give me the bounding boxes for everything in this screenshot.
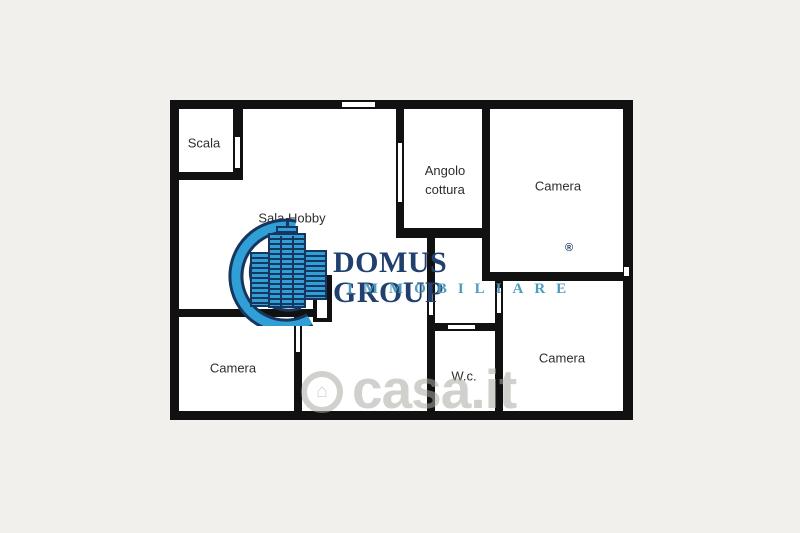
logo-building-divider-icon xyxy=(280,236,282,306)
wall-cottura-bottom xyxy=(396,228,490,238)
floorplan-image: ScalaSala HobbyAngolo cotturaCameraCamer… xyxy=(0,0,800,533)
room-label: Camera xyxy=(539,350,585,369)
casait-house-icon: ⌂ xyxy=(301,371,343,413)
door-scala xyxy=(234,137,241,168)
window-top xyxy=(342,101,375,108)
room-label: Camera xyxy=(210,360,256,379)
window-wc xyxy=(448,324,475,330)
logo-building-divider-icon xyxy=(292,236,294,306)
logo-title: DOMUS GROUP xyxy=(333,248,447,308)
registered-trademark-icon: ® xyxy=(565,242,573,254)
wall-outer-right xyxy=(623,100,633,420)
notch-right xyxy=(624,267,629,276)
room-label: Camera xyxy=(535,178,581,197)
window-cottura xyxy=(397,143,403,202)
wall-scala-bottom xyxy=(170,172,243,180)
logo-subtitle: IMMOBILIARE xyxy=(347,282,577,297)
wall-mid-right xyxy=(482,272,633,281)
wall-cottura-right xyxy=(482,100,490,281)
casait-text: casa.it xyxy=(352,362,516,417)
logo-building-center-icon xyxy=(268,233,306,308)
wall-outer-left xyxy=(170,100,179,420)
house-glyph: ⌂ xyxy=(316,381,327,403)
door-camera-bl xyxy=(295,323,301,352)
room-label: Angolo cottura xyxy=(425,162,465,200)
logo-antenna-icon xyxy=(286,218,289,228)
room-label: Scala xyxy=(188,135,221,154)
